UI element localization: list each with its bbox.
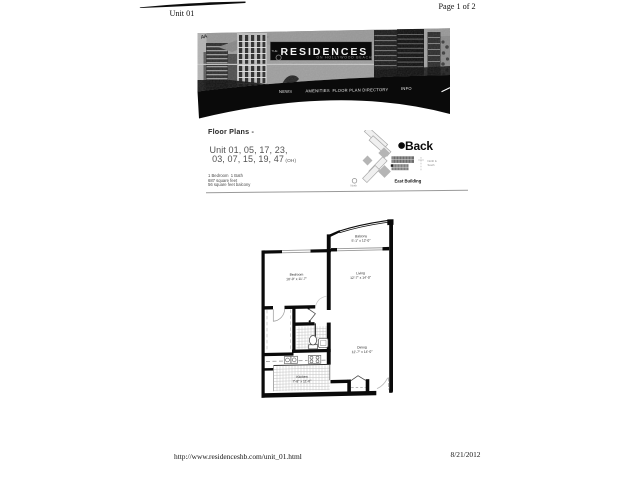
svg-text:5'-1" x 12'-0": 5'-1" x 12'-0"	[352, 239, 372, 243]
svg-text:North &: North &	[428, 159, 437, 163]
svg-text:ON HOLLYWOOD BEACH: ON HOLLYWOOD BEACH	[317, 56, 373, 60]
svg-text:NEWS: NEWS	[279, 89, 292, 94]
svg-text:7'-8" x 11'-0": 7'-8" x 11'-0"	[293, 379, 313, 383]
svg-text:INFO: INFO	[401, 86, 412, 91]
svg-text:East Building: East Building	[395, 179, 422, 184]
svg-text:FLOOR PLAN DIRECTORY: FLOOR PLAN DIRECTORY	[332, 87, 388, 93]
svg-text:THE: THE	[272, 49, 278, 53]
svg-text:12'-7" x 14'-0": 12'-7" x 14'-0"	[352, 350, 374, 354]
svg-text:AMENITIES: AMENITIES	[305, 88, 329, 93]
svg-text:South: South	[428, 163, 436, 167]
svg-text:12'-7" x 14'-0": 12'-7" x 14'-0"	[350, 275, 372, 279]
svg-text:10'-0" x 11'-7": 10'-0" x 11'-7"	[286, 277, 307, 281]
svg-text:North: North	[351, 184, 358, 188]
svg-text:Back: Back	[405, 139, 433, 153]
